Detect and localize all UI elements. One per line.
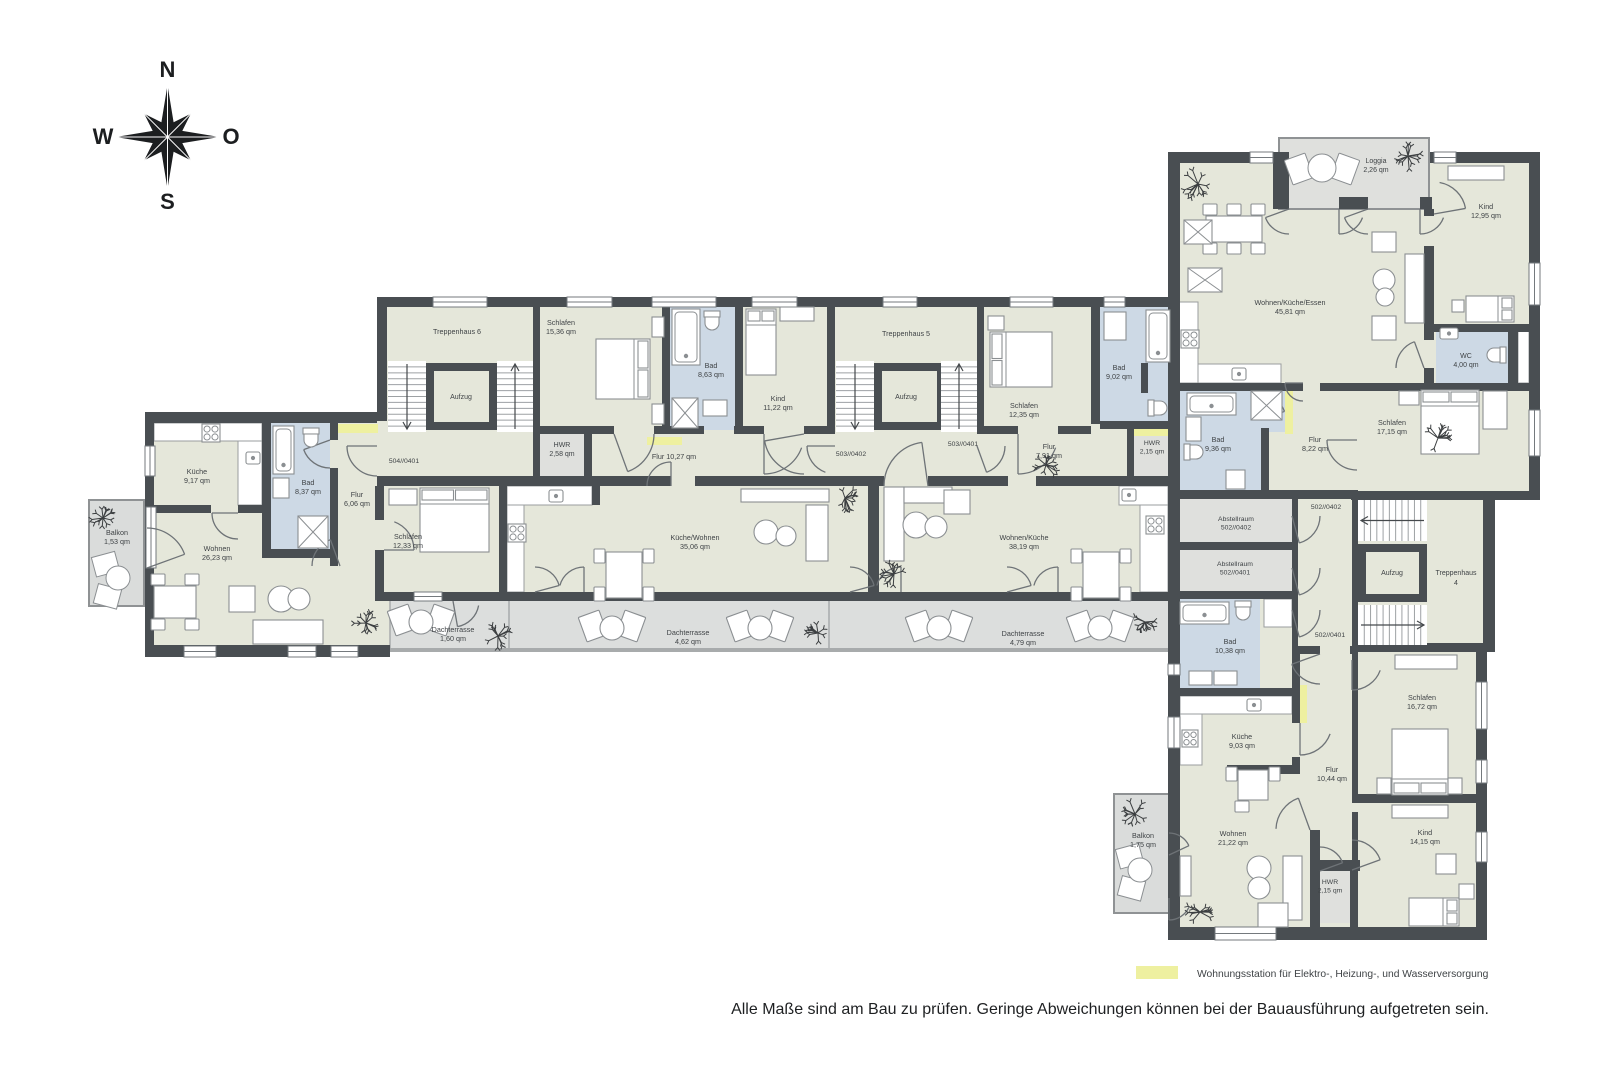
svg-text:Balkon: Balkon xyxy=(1132,831,1154,840)
svg-text:15,36 qm: 15,36 qm xyxy=(546,327,576,336)
svg-text:S: S xyxy=(160,189,175,214)
svg-text:503//0402: 503//0402 xyxy=(836,451,866,458)
svg-text:Bad: Bad xyxy=(1113,363,1126,372)
svg-text:Aufzug: Aufzug xyxy=(1381,570,1403,577)
svg-text:Kind: Kind xyxy=(1479,202,1493,211)
svg-text:Flur 10,27 qm: Flur 10,27 qm xyxy=(652,452,696,461)
svg-text:Aufzug: Aufzug xyxy=(450,394,472,401)
svg-text:Flur: Flur xyxy=(1043,442,1056,451)
svg-text:HWR: HWR xyxy=(1322,879,1338,886)
svg-text:W: W xyxy=(93,124,114,149)
svg-text:10,38 qm: 10,38 qm xyxy=(1215,646,1245,655)
svg-text:HWR: HWR xyxy=(1144,440,1160,447)
svg-text:503//0401: 503//0401 xyxy=(948,441,978,448)
svg-text:Küche: Küche xyxy=(1232,732,1252,741)
svg-text:Bad: Bad xyxy=(302,478,315,487)
svg-text:502//0402: 502//0402 xyxy=(1311,504,1341,511)
svg-text:26,23 qm: 26,23 qm xyxy=(202,553,232,562)
svg-text:12,35 qm: 12,35 qm xyxy=(1009,410,1039,419)
svg-text:35,06 qm: 35,06 qm xyxy=(680,542,710,551)
svg-text:11,22 qm: 11,22 qm xyxy=(763,403,792,412)
svg-text:502//0401: 502//0401 xyxy=(1315,632,1345,639)
svg-text:502//0402: 502//0402 xyxy=(1221,525,1251,532)
svg-text:2,15 qm: 2,15 qm xyxy=(1140,449,1165,456)
svg-text:1,53 qm: 1,53 qm xyxy=(104,537,130,546)
svg-text:Kind: Kind xyxy=(1418,828,1432,837)
svg-text:21,22 qm: 21,22 qm xyxy=(1218,838,1248,847)
svg-text:Flur: Flur xyxy=(1326,765,1339,774)
svg-text:1,75 qm: 1,75 qm xyxy=(1130,840,1156,849)
svg-text:9,36 qm: 9,36 qm xyxy=(1205,444,1231,453)
svg-text:WC: WC xyxy=(1460,353,1472,360)
svg-text:4,62 qm: 4,62 qm xyxy=(675,637,701,646)
svg-text:Bad: Bad xyxy=(705,361,718,370)
svg-text:1,60 qm: 1,60 qm xyxy=(440,634,466,643)
svg-text:Wohnen/Küche: Wohnen/Küche xyxy=(999,533,1048,542)
svg-text:Loggia: Loggia xyxy=(1365,158,1386,165)
svg-text:4,79 qm: 4,79 qm xyxy=(1010,638,1036,647)
svg-text:Bad: Bad xyxy=(1212,435,1225,444)
svg-text:8,37 qm: 8,37 qm xyxy=(295,487,321,496)
svg-text:8,22 qm: 8,22 qm xyxy=(1302,444,1328,453)
svg-text:9,03 qm: 9,03 qm xyxy=(1229,741,1255,750)
svg-text:38,19 qm: 38,19 qm xyxy=(1009,542,1039,551)
svg-text:9,17 qm: 9,17 qm xyxy=(184,476,210,485)
svg-text:Abstellraum: Abstellraum xyxy=(1218,516,1254,523)
svg-text:Dachterrasse: Dachterrasse xyxy=(1002,629,1045,638)
svg-text:9,02 qm: 9,02 qm xyxy=(1106,372,1132,381)
svg-text:2,26 qm: 2,26 qm xyxy=(1363,167,1388,174)
svg-text:Dachterrasse: Dachterrasse xyxy=(432,625,475,634)
svg-text:O: O xyxy=(222,124,239,149)
svg-text:Flur: Flur xyxy=(351,490,364,499)
svg-text:10,44 qm: 10,44 qm xyxy=(1317,774,1347,783)
svg-text:Treppenhaus 5: Treppenhaus 5 xyxy=(882,329,930,338)
svg-text:4: 4 xyxy=(1454,580,1458,587)
svg-text:Schlafen: Schlafen xyxy=(1010,401,1038,410)
svg-text:Schlafen: Schlafen xyxy=(1408,693,1436,702)
svg-text:Wohnen/Küche/Essen: Wohnen/Küche/Essen xyxy=(1255,298,1326,307)
svg-text:Küche/Wohnen: Küche/Wohnen xyxy=(670,533,719,542)
svg-text:4,00 qm: 4,00 qm xyxy=(1453,362,1478,369)
svg-text:Schlafen: Schlafen xyxy=(1378,418,1406,427)
svg-text:7,91 qm: 7,91 qm xyxy=(1036,451,1062,460)
svg-text:502//0401: 502//0401 xyxy=(1220,570,1250,577)
svg-text:2,15 qm: 2,15 qm xyxy=(1318,888,1343,895)
svg-text:HWR: HWR xyxy=(554,442,571,449)
svg-text:12,95 qm: 12,95 qm xyxy=(1471,211,1501,220)
svg-text:Flur: Flur xyxy=(1309,435,1322,444)
svg-text:Wohnen: Wohnen xyxy=(204,544,231,553)
svg-text:Schlafen: Schlafen xyxy=(394,532,422,541)
svg-text:Schlafen: Schlafen xyxy=(547,318,575,327)
svg-text:14,15 qm: 14,15 qm xyxy=(1410,837,1440,846)
svg-text:Wohnen: Wohnen xyxy=(1220,829,1247,838)
svg-text:6,06 qm: 6,06 qm xyxy=(344,499,370,508)
svg-text:Bad: Bad xyxy=(1224,637,1237,646)
svg-text:Treppenhaus 6: Treppenhaus 6 xyxy=(433,327,481,336)
svg-text:Aufzug: Aufzug xyxy=(895,394,917,401)
svg-text:17,15 qm: 17,15 qm xyxy=(1377,427,1407,436)
svg-text:2,58 qm: 2,58 qm xyxy=(549,451,574,458)
svg-text:Alle Maße sind am Bau zu prüfe: Alle Maße sind am Bau zu prüfen. Geringe… xyxy=(731,1001,1489,1018)
svg-text:Treppenhaus: Treppenhaus xyxy=(1436,570,1477,577)
svg-text:N: N xyxy=(160,57,176,82)
svg-text:12,33 qm: 12,33 qm xyxy=(393,541,423,550)
svg-text:Balkon: Balkon xyxy=(106,528,128,537)
svg-text:Wohnungsstation für Elektro-,: Wohnungsstation für Elektro-, Heizung-, … xyxy=(1197,969,1489,980)
svg-text:Dachterrasse: Dachterrasse xyxy=(667,628,710,637)
svg-text:Küche: Küche xyxy=(187,467,207,476)
svg-text:45,81 qm: 45,81 qm xyxy=(1275,307,1305,316)
svg-text:504//0401: 504//0401 xyxy=(389,458,419,465)
svg-text:16,72 qm: 16,72 qm xyxy=(1407,702,1437,711)
svg-text:Kind: Kind xyxy=(771,394,785,403)
svg-text:8,63 qm: 8,63 qm xyxy=(698,370,724,379)
svg-text:Abstellraum: Abstellraum xyxy=(1217,561,1253,568)
